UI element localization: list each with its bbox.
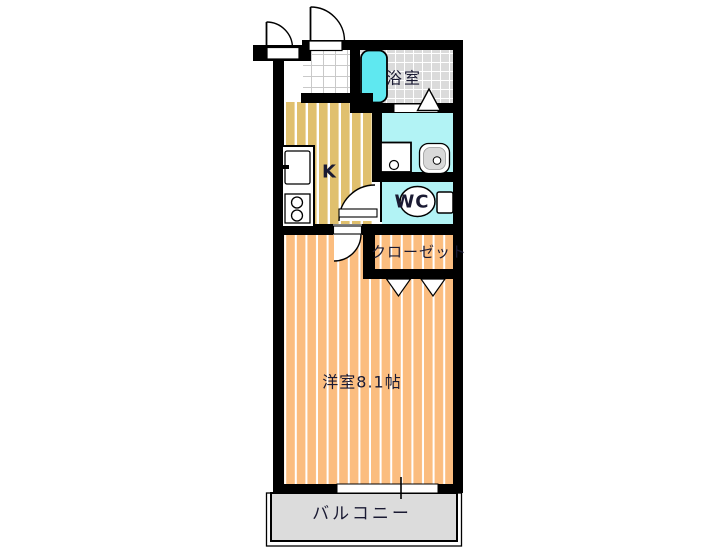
western-room-label: 洋室8.1帖 [322, 373, 401, 392]
balcony-label: バルコニー [312, 504, 412, 524]
entrance-door-sill-small [267, 48, 299, 60]
bathroom-label: 浴室 [386, 69, 422, 88]
floorplan-page: 浴室 K WC クローゼット 洋室8.1帖 バルコニー [0, 0, 710, 550]
wall-genkan-bath [350, 40, 360, 113]
toilet-tank [437, 192, 453, 213]
door-leaf-icon [334, 226, 362, 234]
wc-label: WC [394, 192, 429, 213]
wall-genkan-bottom [301, 93, 373, 103]
burner-icon [292, 197, 303, 208]
wall-washroom-wc [372, 172, 463, 182]
entrance-door-sill-main [309, 41, 342, 51]
sliding-window-icon [337, 484, 438, 493]
wc-door-jamb [380, 182, 382, 222]
closet-label: クローゼット [371, 243, 467, 261]
basin-drain-icon [433, 157, 441, 165]
door-leaf-icon [339, 209, 377, 217]
burner-icon [292, 210, 303, 221]
kitchen-label: K [322, 162, 337, 183]
faucet-icon [274, 165, 289, 169]
wall-right [453, 40, 463, 493]
wall-left [273, 58, 284, 493]
wall-closet-bottom [363, 269, 463, 279]
floorplan-canvas: 浴室 K WC クローゼット 洋室8.1帖 バルコニー [0, 0, 710, 550]
drain-icon [390, 161, 399, 170]
